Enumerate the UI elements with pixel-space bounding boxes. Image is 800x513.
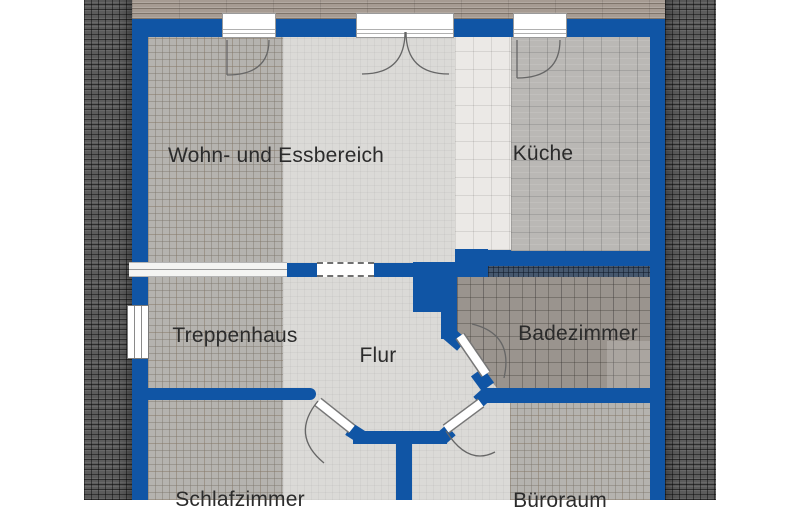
room-bueroraum-floor xyxy=(510,400,650,500)
entry-door-kueche-threshold xyxy=(513,13,567,38)
roof-left xyxy=(84,0,132,500)
wall-flur-top-block xyxy=(413,262,457,312)
sliding-door-flur xyxy=(317,262,374,277)
wall-flur-neck xyxy=(441,312,457,339)
entry-door-double-threshold xyxy=(356,13,454,38)
room-bueroraum-floor-light xyxy=(412,400,510,500)
wall-treppenhaus-bottom xyxy=(132,388,316,400)
roof-right xyxy=(665,0,716,500)
wall-schlaf-buero-divider xyxy=(396,443,412,500)
room-kueche-floor-light-strip xyxy=(455,37,511,250)
entry-door-wohnbereich-threshold xyxy=(222,13,276,38)
window-treppenhaus xyxy=(127,305,149,359)
wall-kueche-bottom xyxy=(455,249,488,274)
room-label-wohn-essbereich: Wohn- und Essbereich xyxy=(168,144,384,168)
room-label-treppenhaus: Treppenhaus xyxy=(172,324,297,348)
room-label-bueroraum: Büroraum xyxy=(513,489,607,513)
room-label-badezimmer: Badezimmer xyxy=(518,322,638,346)
badezimmer-border-tiles xyxy=(488,266,650,278)
room-label-schlafzimmer: Schlafzimmer xyxy=(175,488,305,512)
floorplan-page: { "floorplan": { "type": "residential-fl… xyxy=(0,0,800,500)
partition-treppenhaus xyxy=(129,262,287,277)
wall-badezimmer-bottom xyxy=(484,388,665,403)
room-label-kueche: Küche xyxy=(513,142,574,166)
badezimmer-floor-light-patch xyxy=(607,341,650,388)
room-schlafzimmer-floor-light xyxy=(283,399,396,500)
room-label-flur: Flur xyxy=(360,344,397,368)
room-schlafzimmer-floor xyxy=(148,399,283,500)
